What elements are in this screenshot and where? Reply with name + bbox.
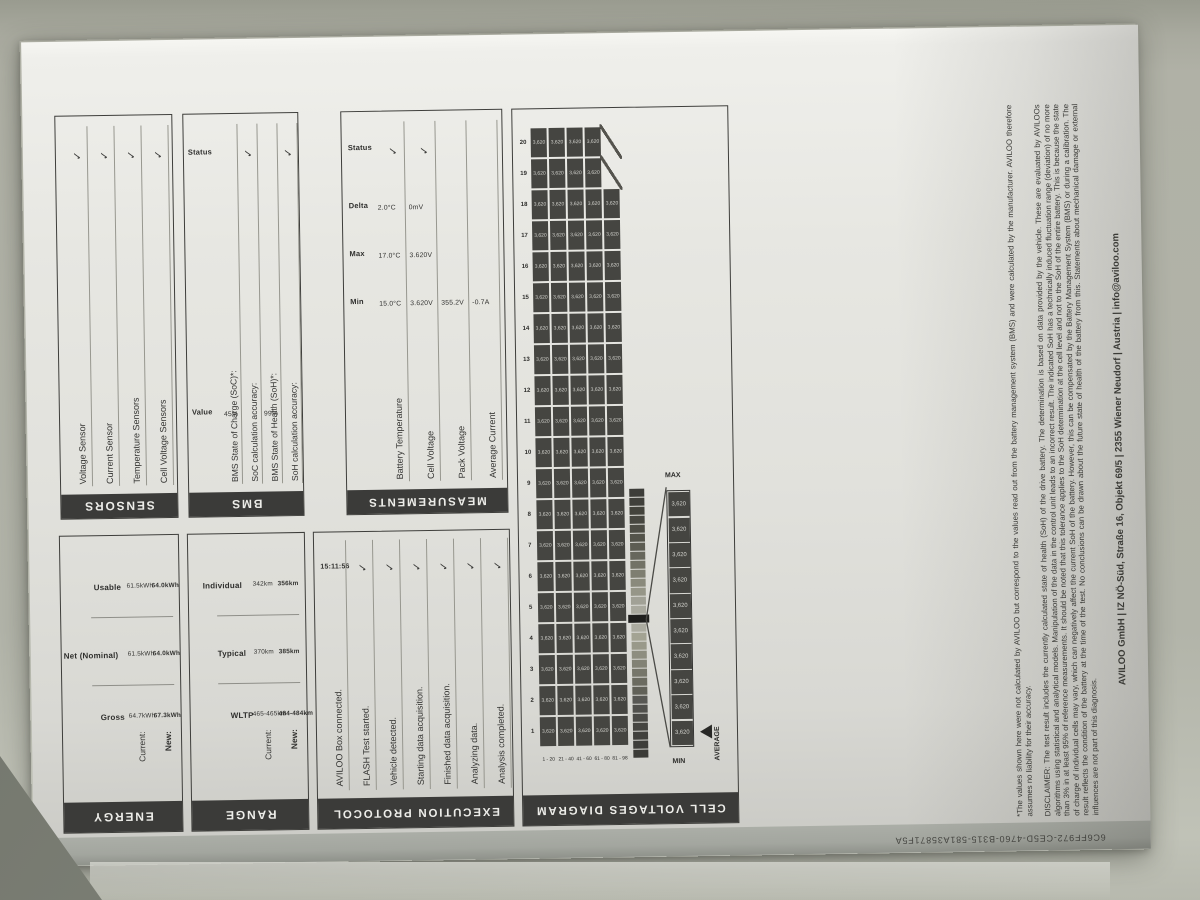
row-underline xyxy=(372,540,377,790)
sensors-bar: SENSORS xyxy=(61,493,177,519)
range-section: RANGE WLTP Typical Individual Current: N… xyxy=(187,532,310,832)
grid-column-number: 14 xyxy=(519,313,532,344)
cell-voltage-cell: 3,620 xyxy=(585,250,603,281)
protocol-step-label: Finished data acquisition. xyxy=(441,683,453,785)
cell-voltage-cell: 3,620 xyxy=(551,344,569,375)
cell-voltage-cell: 3,620 xyxy=(604,312,622,343)
cell-voltage-cell: 3,620 xyxy=(554,561,572,592)
measurements-title: MEASUREMENTS xyxy=(368,494,488,508)
cell-voltage-cell: 3,620 xyxy=(530,189,548,220)
cell-voltage-cell: 3,620 xyxy=(591,622,609,653)
magnified-cell: 3,620 xyxy=(669,594,690,619)
cell-voltage-cell: 3,620 xyxy=(532,313,550,344)
sensors-title: SENSORS xyxy=(84,498,156,513)
sensor-label: Current Sensor xyxy=(104,423,115,484)
row-underline xyxy=(507,538,512,788)
cell-voltage-cell: 3,620 xyxy=(603,250,621,281)
row-underline xyxy=(426,539,431,789)
row-underline xyxy=(496,120,503,480)
measurement-value: 0mV xyxy=(409,204,424,211)
sensor-label: Temperature Sensors xyxy=(131,397,142,483)
cell-voltage-cell: 3,620 xyxy=(587,343,605,374)
cell-voltage-cell: 3,620 xyxy=(548,189,566,220)
average-marker-triangle xyxy=(700,725,712,739)
cell-voltage-cell: 3,620 xyxy=(555,592,573,623)
energy-value: 64.0kWh xyxy=(153,650,180,657)
cell-voltage-cell: 3,620 xyxy=(553,468,571,499)
grid-column-number: 5 xyxy=(524,592,537,623)
cell-voltage-table: 12345678910111213141516171819201 - 203,6… xyxy=(516,126,629,774)
bms-status-check: ✓ xyxy=(282,148,295,157)
cell-voltage-cell: 3,620 xyxy=(538,685,556,716)
grid-corner xyxy=(526,747,539,773)
grid-column-number: 13 xyxy=(520,344,533,375)
energy-section: ENERGY Gross Net (Nominal) Usable Curren… xyxy=(59,534,184,834)
cell-voltage-cell: 3,620 xyxy=(575,715,593,746)
sensor-label: Cell Voltage Sensors xyxy=(158,400,169,484)
cell-voltage-cell: 3,620 xyxy=(573,622,591,653)
magnified-cell: 3,620 xyxy=(669,543,690,568)
document-id: 6C6FF972-CE5D-4760-B315-581A35871F5A xyxy=(876,832,1106,846)
protocol-step-label: Starting data acquisition. xyxy=(414,687,426,786)
missing-cell-slash xyxy=(602,157,620,188)
protocol-status-check: ✓ xyxy=(356,563,369,572)
cell-voltage-cell: 3,620 xyxy=(532,282,550,313)
measurement-row-label: Pack Voltage xyxy=(456,426,467,479)
execution-protocol-section: EXECUTION PROTOCOL AVILOO Box connected.… xyxy=(313,529,515,830)
grid-column-number: 17 xyxy=(518,220,531,251)
magnified-cell: 3,620 xyxy=(671,720,692,745)
bms-col-status: Status xyxy=(188,147,212,156)
cell-voltage-cell: 3,620 xyxy=(603,219,621,250)
cell-voltage-cell: 3,620 xyxy=(552,406,570,437)
range-col-wltp: WLTP xyxy=(231,711,254,720)
measurement-row-label: Battery Temperature xyxy=(394,398,405,480)
row-underline xyxy=(453,539,458,789)
cell-voltage-cell: 3,620 xyxy=(571,498,589,529)
row-underline xyxy=(345,540,350,790)
execution-protocol-bar: EXECUTION PROTOCOL xyxy=(318,796,513,829)
row-underline xyxy=(480,538,485,788)
protocol-step-label: Analysis completed. xyxy=(496,704,507,784)
measurements-section: MEASUREMENTS Min Max Delta Status Batter… xyxy=(340,109,508,515)
cell-voltage-cell: 3,620 xyxy=(537,623,555,654)
measurement-status-check: ✓ xyxy=(387,146,400,155)
bms-row-label: SoH calculation accuracy: xyxy=(288,382,300,481)
meas-col-status: Status xyxy=(348,143,372,152)
cell-voltage-cell: 3,620 xyxy=(556,685,574,716)
grid-column-number: 9 xyxy=(522,468,535,499)
energy-col-net: Net (Nominal) xyxy=(64,651,119,661)
magnified-cell: 3,620 xyxy=(668,492,689,517)
energy-value: 61.5kWh xyxy=(128,650,155,657)
execution-protocol-title: EXECUTION PROTOCOL xyxy=(332,805,500,820)
report-page: 6C6FF972-CE5D-4760-B315-581A35871F5A ENE… xyxy=(21,25,1151,866)
bms-row-label: BMS State of Health (SoH)*: xyxy=(268,373,280,482)
measurement-row-label: Average Current xyxy=(487,412,498,478)
cell-voltages-title: CELL VOLTAGES DIAGRAM xyxy=(535,801,726,816)
magnified-cell: 3,620 xyxy=(669,568,690,593)
column-divider xyxy=(218,682,300,684)
cell-voltage-cell: 3,620 xyxy=(566,157,584,188)
cell-voltage-cell: 3,620 xyxy=(551,375,569,406)
grid-column-number: 12 xyxy=(520,375,533,406)
grid-column-number: 8 xyxy=(522,499,535,530)
grid-column-number: 11 xyxy=(521,406,534,437)
grid-column-number: 1 xyxy=(526,716,539,747)
row-underline xyxy=(113,126,120,486)
measurement-value: 3.620V xyxy=(410,300,433,307)
measurements-bar: MEASUREMENTS xyxy=(347,488,507,515)
magnified-cell: 3,620 xyxy=(670,619,691,644)
cell-voltage-cell: 3,620 xyxy=(569,343,587,374)
protocol-status-check: ✓ xyxy=(383,562,396,571)
meas-col-max: Max xyxy=(349,249,364,258)
grid-column-number: 10 xyxy=(521,437,534,468)
column-divider xyxy=(92,684,174,686)
range-row-label: New: xyxy=(289,729,300,821)
cell-voltages-section: CELL VOLTAGES DIAGRAM 123456789101112131… xyxy=(511,105,739,826)
measurement-value: -0.7A xyxy=(472,299,489,306)
grid-column-number: 20 xyxy=(516,127,529,158)
missing-cell-slash xyxy=(601,126,619,157)
grid-column-number: 4 xyxy=(524,623,537,654)
bms-row-label: BMS State of Charge (SoC)*: xyxy=(228,370,240,482)
energy-value: 64.7kWh xyxy=(129,712,156,719)
cell-voltage-cell: 3,620 xyxy=(536,530,554,561)
cell-voltages-bar: CELL VOLTAGES DIAGRAM xyxy=(523,792,738,825)
cell-voltage-cell: 3,620 xyxy=(568,312,586,343)
grid-column-number: 6 xyxy=(523,561,536,592)
grid-column-number: 18 xyxy=(517,189,530,220)
bms-title: BMS xyxy=(230,497,262,512)
cell-voltage-cell: 3,620 xyxy=(584,188,602,219)
cell-voltage-cell: 3,620 xyxy=(555,623,573,654)
cell-voltage-cell: 3,620 xyxy=(550,313,568,344)
cell-voltage-cell: 3,620 xyxy=(586,312,604,343)
bms-bar: BMS xyxy=(189,491,303,517)
bms-value: 99% xyxy=(264,410,278,417)
cell-voltage-cell: 3,620 xyxy=(592,653,610,684)
range-value: 484-484km xyxy=(279,710,314,718)
range-col-typical: Typical xyxy=(218,649,247,658)
cell-voltage-cell: 3,620 xyxy=(538,654,556,685)
cell-voltage-cell: 3,620 xyxy=(568,281,586,312)
cell-voltage-cell: 3,620 xyxy=(549,251,567,282)
measurement-status-check: ✓ xyxy=(418,146,431,155)
cell-voltage-cell: 3,620 xyxy=(537,592,555,623)
energy-col-usable: Usable xyxy=(94,583,122,592)
meas-col-delta: Delta xyxy=(349,201,368,210)
protocol-step-label: Analyzing data. xyxy=(469,723,480,785)
bms-row-label: SoC calculation accuracy: xyxy=(248,383,260,482)
protocol-status-check: ✓ xyxy=(464,561,477,570)
average-label: AVERAGE xyxy=(714,726,722,760)
cell-voltage-cell: 3,620 xyxy=(606,405,624,436)
cell-voltage-cell: 3,620 xyxy=(590,560,608,591)
cell-voltage-cell: 3,620 xyxy=(535,499,553,530)
sensors-section: SENSORS Voltage Sensor✓Current Sensor✓Te… xyxy=(54,114,178,520)
grid-column-number: 15 xyxy=(519,282,532,313)
cell-voltage-cell: 3,620 xyxy=(549,220,567,251)
range-row-label: Current: xyxy=(263,729,274,821)
energy-row-label: Current: xyxy=(137,731,148,823)
energy-value: 67.3kWh xyxy=(154,712,181,719)
cell-voltage-cell: 3,620 xyxy=(606,436,624,467)
measurement-value: 15.0°C xyxy=(379,300,401,307)
energy-value: 64.0kWh xyxy=(152,582,179,589)
grid-column-number: 3 xyxy=(525,654,538,685)
cell-voltage-cell: 3,620 xyxy=(565,127,583,158)
range-value: 342km xyxy=(253,580,273,587)
row-underline xyxy=(465,120,472,480)
cell-voltage-cell: 3,620 xyxy=(553,499,571,530)
row-underline xyxy=(140,125,147,485)
cell-voltage-cell: 3,620 xyxy=(556,654,574,685)
row-underline xyxy=(167,125,174,485)
grid-row-label: 41 - 60 xyxy=(575,746,593,772)
cell-voltage-cell: 3,620 xyxy=(569,374,587,405)
protocol-step-label: Vehicle detected. xyxy=(388,717,399,786)
cell-voltage-cell: 3,620 xyxy=(566,188,584,219)
cell-voltage-cell: 3,620 xyxy=(535,468,553,499)
sensor-label: Voltage Sensor xyxy=(77,423,88,484)
measurement-value: 17.0°C xyxy=(378,252,400,259)
cell-voltage-cell: 3,620 xyxy=(591,591,609,622)
measurement-row-label: Cell Voltage xyxy=(425,431,436,479)
photo-scene: 6C6FF972-CE5D-4760-B315-581A35871F5A ENE… xyxy=(0,0,1200,900)
range-value: 356km xyxy=(278,580,299,587)
magnified-cell: 3,620 xyxy=(671,670,692,695)
protocol-step-label: FLASH Test started. xyxy=(361,706,372,787)
cell-voltage-cell: 3,620 xyxy=(586,281,604,312)
grid-column-number: 2 xyxy=(525,685,538,716)
cell-voltage-cell: 3,620 xyxy=(570,405,588,436)
energy-row-label: New: xyxy=(163,731,174,823)
column-divider xyxy=(217,614,299,616)
cell-voltage-cell: 3,620 xyxy=(531,251,549,282)
cell-voltage-cell: 3,620 xyxy=(592,684,610,715)
protocol-status-check: ✓ xyxy=(437,561,450,570)
cell-voltage-cell: 3,620 xyxy=(571,467,589,498)
range-col-individual: Individual xyxy=(203,581,242,591)
cell-voltage-cell: 3,620 xyxy=(589,467,607,498)
cell-voltage-cell: 3,620 xyxy=(531,220,549,251)
cell-voltage-cell: 3,620 xyxy=(567,219,585,250)
company-address: AVILOO GmbH | IZ NÖ-Süd, Straße 16, Obje… xyxy=(1108,89,1131,829)
magnified-cell: 3,620 xyxy=(671,695,692,720)
cell-voltage-cell: 3,620 xyxy=(590,529,608,560)
grid-column-number: 7 xyxy=(523,530,536,561)
cell-voltage-cell: 3,620 xyxy=(547,127,565,158)
row-underline xyxy=(399,539,404,789)
cell-voltage-cell: 3,620 xyxy=(602,188,620,219)
max-label: MAX xyxy=(665,472,681,479)
bms-section: BMS Value Status BMS State of Charge (So… xyxy=(182,112,304,518)
bms-col-value: Value xyxy=(192,407,213,416)
cell-voltage-cell: 3,620 xyxy=(574,653,592,684)
cell-voltage-cell: 3,620 xyxy=(539,716,557,747)
measurement-value: 355.2V xyxy=(441,299,464,306)
cell-voltage-cell: 3,620 xyxy=(552,437,570,468)
row-underline xyxy=(86,126,93,486)
range-value: 370km xyxy=(254,648,274,655)
cell-voltage-cell: 3,620 xyxy=(588,436,606,467)
measurement-value: 2.0°C xyxy=(378,204,396,211)
grid-row-label: 61 - 80 xyxy=(593,746,611,772)
measurement-value: 3.620V xyxy=(409,252,432,259)
row-underline xyxy=(434,121,441,481)
sensor-status-check: ✓ xyxy=(98,151,111,160)
min-label: MIN xyxy=(672,758,685,765)
grid-row-label: 1 - 20 xyxy=(539,747,557,773)
cell-voltage-cell: 3,620 xyxy=(604,281,622,312)
cell-voltage-cell: 3,620 xyxy=(554,530,572,561)
protocol-step-label: AVILOO Box connected. xyxy=(333,689,345,787)
cell-voltage-cell: 3,620 xyxy=(533,344,551,375)
magnified-cell: 3,620 xyxy=(670,644,691,669)
cell-voltage-cell: 3,620 xyxy=(574,684,592,715)
cell-voltage-cell: 3,620 xyxy=(588,405,606,436)
cell-voltage-cell: 3,620 xyxy=(550,282,568,313)
cell-voltage-cell: 3,620 xyxy=(587,374,605,405)
energy-value: 61.5kWh xyxy=(127,582,154,589)
grid-column-number: 19 xyxy=(517,158,530,189)
desk-highlight xyxy=(90,862,1110,900)
bms-value: 45% xyxy=(224,411,238,418)
magnified-cell-row: 3,6203,6203,6203,6203,6203,6203,6203,620… xyxy=(666,490,694,747)
cell-voltage-cell: 3,620 xyxy=(529,127,547,158)
row-underline xyxy=(403,121,410,481)
cell-voltage-cell: 3,620 xyxy=(533,375,551,406)
grid-column-number: 16 xyxy=(518,251,531,282)
protocol-status-check: ✓ xyxy=(491,561,504,570)
cell-voltage-cell: 3,620 xyxy=(593,715,611,746)
energy-col-gross: Gross xyxy=(101,713,125,722)
cell-voltage-cell: 3,620 xyxy=(534,406,552,437)
meas-col-min: Min xyxy=(350,297,364,306)
bms-status-check: ✓ xyxy=(242,148,255,157)
sensor-status-check: ✓ xyxy=(125,150,138,159)
cell-voltage-cell: 3,620 xyxy=(567,250,585,281)
column-divider xyxy=(91,616,173,618)
cell-voltage-cell: 3,620 xyxy=(589,498,607,529)
cell-voltage-cell: 3,620 xyxy=(585,219,603,250)
cell-voltage-cell: 3,620 xyxy=(572,529,590,560)
cell-voltage-cell: 3,620 xyxy=(530,158,548,189)
cell-voltage-cell: 3,620 xyxy=(548,158,566,189)
cell-voltage-cell: 3,620 xyxy=(605,343,623,374)
protocol-status-check: ✓ xyxy=(410,562,423,571)
cell-voltage-cell: 3,620 xyxy=(557,716,575,747)
magnified-cell: 3,620 xyxy=(668,518,689,543)
disclaimer-text: DISCLAIMER: The test result includes the… xyxy=(1032,104,1101,817)
footnote-text: *The values shown here were not calculat… xyxy=(1004,105,1034,817)
cell-voltage-cell: 3,620 xyxy=(536,561,554,592)
sensor-status-check: ✓ xyxy=(152,150,165,159)
cell-voltage-cell: 3,620 xyxy=(572,560,590,591)
cell-voltage-cell: 3,620 xyxy=(534,437,552,468)
cell-voltage-cell: 3,620 xyxy=(573,591,591,622)
range-value: 385km xyxy=(279,648,300,655)
cell-voltage-cell: 3,620 xyxy=(570,436,588,467)
sensor-status-check: ✓ xyxy=(71,151,84,160)
grid-row-label: 21 - 40 xyxy=(557,747,575,773)
cell-voltage-cell: 3,620 xyxy=(605,374,623,405)
